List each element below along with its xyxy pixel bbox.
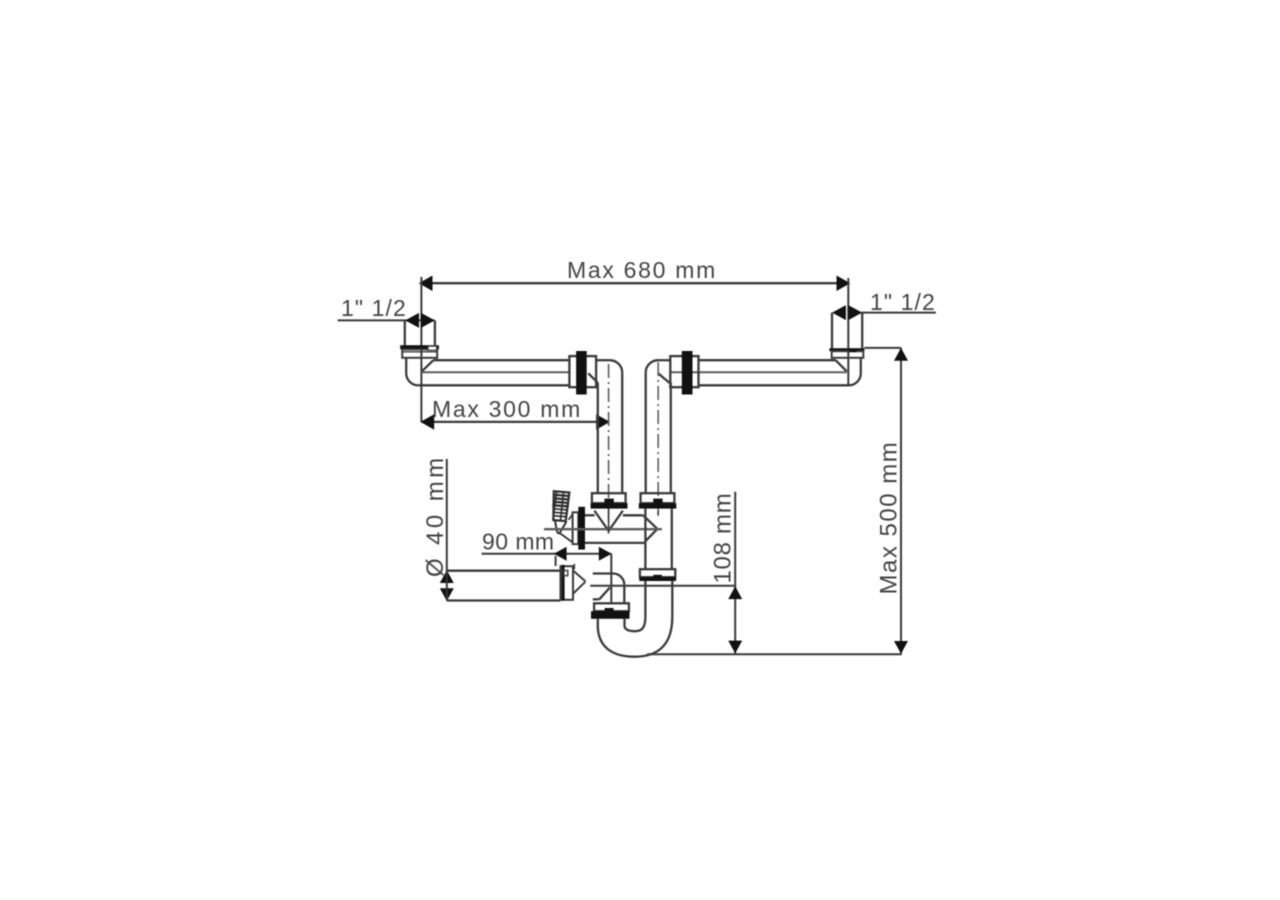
svg-text:1" 1/2: 1" 1/2 bbox=[341, 295, 407, 321]
svg-text:90 mm: 90 mm bbox=[482, 529, 555, 555]
svg-text:Max 500 mm: Max 500 mm bbox=[876, 441, 903, 595]
svg-text:Ø 40 mm: Ø 40 mm bbox=[422, 455, 449, 577]
svg-text:1" 1/2: 1" 1/2 bbox=[870, 289, 936, 315]
svg-text:Max 680 mm: Max 680 mm bbox=[567, 257, 717, 283]
svg-text:108 mm: 108 mm bbox=[710, 493, 737, 584]
svg-text:Max 300 mm: Max 300 mm bbox=[432, 396, 582, 422]
